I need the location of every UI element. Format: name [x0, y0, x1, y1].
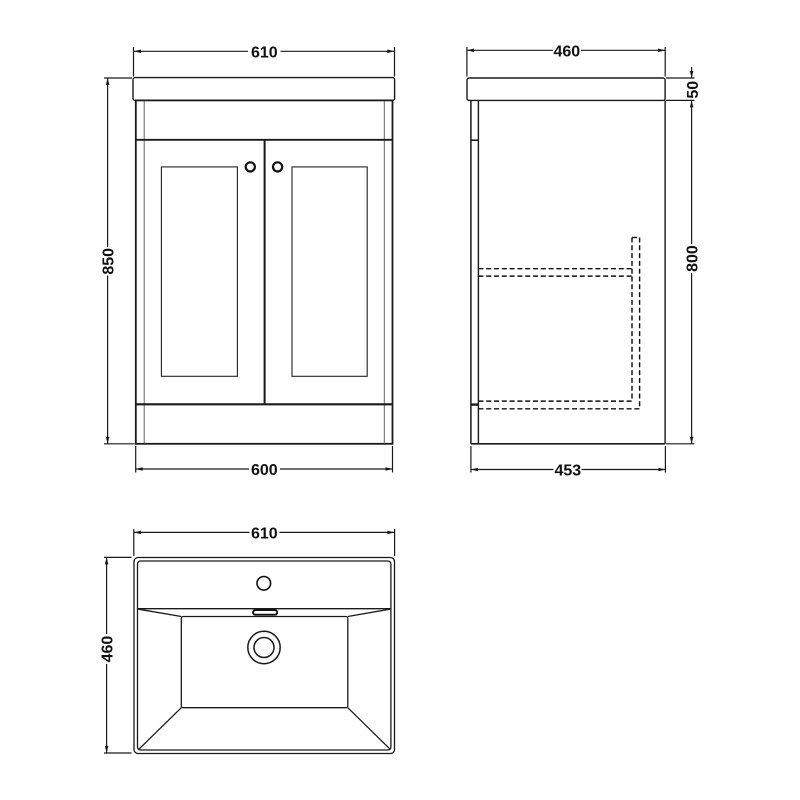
svg-text:600: 600: [251, 462, 278, 479]
svg-text:610: 610: [251, 526, 278, 543]
svg-text:460: 460: [100, 636, 117, 663]
svg-text:610: 610: [251, 44, 278, 61]
svg-text:50: 50: [685, 81, 702, 99]
svg-text:800: 800: [685, 245, 702, 272]
svg-text:850: 850: [101, 248, 118, 275]
svg-text:453: 453: [554, 463, 581, 480]
svg-text:460: 460: [553, 43, 580, 60]
